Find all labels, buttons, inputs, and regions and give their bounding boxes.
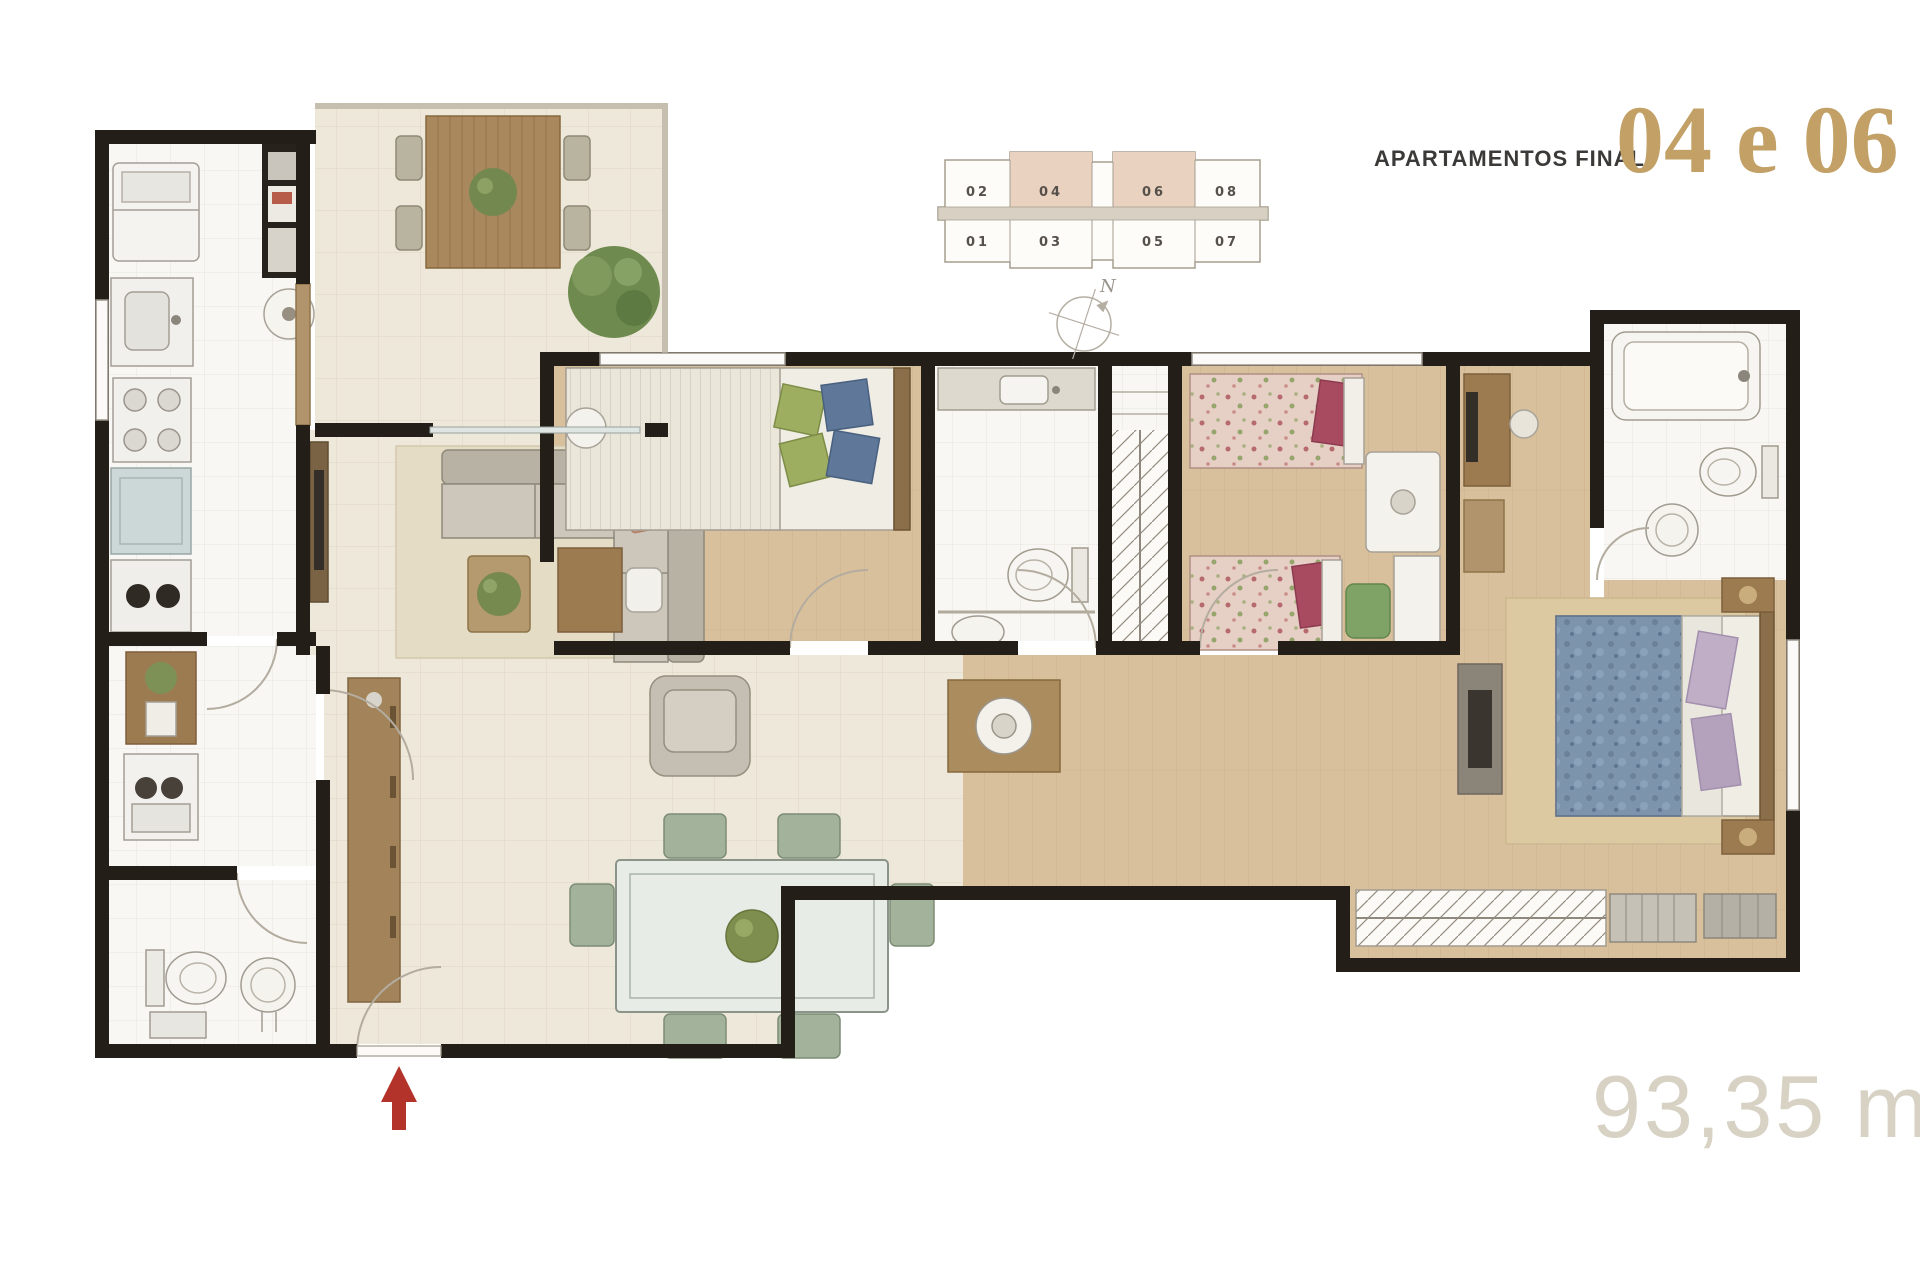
suite-closet (1356, 890, 1776, 946)
kitchen-sink (111, 278, 193, 366)
tv-console (1458, 664, 1502, 794)
compass-north-label: N (1099, 276, 1117, 297)
lamp-table (948, 680, 1060, 772)
suite-window (1787, 640, 1799, 810)
armchair (650, 676, 750, 776)
kitchen-window (96, 300, 108, 420)
key-plan-unit-05: 05 (1142, 235, 1166, 250)
key-plan-corridor (938, 207, 1268, 220)
laundry-cabinet (126, 652, 196, 744)
terrace-parapet-side (662, 103, 668, 360)
toilet (1700, 446, 1778, 498)
area-label: 93,35 m² (1592, 1056, 1920, 1158)
key-plan-unit-07: 07 (1215, 235, 1239, 250)
kitchen-counter (111, 468, 191, 632)
dresser-mirror (1466, 392, 1478, 462)
bed-twin-a (1190, 374, 1364, 468)
unit-numbers: 04 e 06 (1616, 92, 1899, 188)
plant-side-table (468, 556, 530, 632)
key-plan-unit-06: 06 (1142, 185, 1166, 200)
bath-vanity (938, 368, 1095, 410)
key-plan: 02 04 06 08 01 03 05 07 (938, 152, 1268, 268)
key-plan-unit-01: 01 (966, 235, 990, 250)
key-plan-unit-08: 08 (1215, 185, 1239, 200)
bathtub (1612, 332, 1760, 420)
terrace-sliding-door (430, 427, 640, 433)
bed-single-1 (566, 368, 910, 530)
round-sink (1646, 504, 1698, 556)
bedroom2-nightstand (1366, 452, 1440, 552)
key-plan-unit-02: 02 (966, 185, 990, 200)
entrance-door-leaf (357, 1046, 441, 1056)
pass-through-counter (296, 284, 310, 425)
laundry-tank (124, 754, 198, 840)
terrace-parapet (315, 103, 668, 109)
double-bed (1556, 612, 1774, 820)
page-title: APARTAMENTOS FINAL (1374, 146, 1645, 172)
shelf-unit (1464, 500, 1504, 572)
terrace-table (426, 116, 560, 268)
floor-plan-page: 02 04 06 08 01 03 05 07 N APARTAMENTOS F… (0, 0, 1920, 1280)
tv-panel (310, 442, 328, 602)
stove (113, 378, 191, 462)
bedroom1-window (600, 353, 785, 365)
sideboard (348, 678, 400, 1002)
key-plan-unit-04: 04 (1039, 185, 1063, 200)
key-plan-unit-03: 03 (1039, 235, 1063, 250)
dining-table (616, 860, 888, 1012)
terrace-tree (568, 246, 660, 338)
stool (1510, 410, 1538, 438)
bedroom2-window (1192, 353, 1422, 365)
entrance-arrow-icon (381, 1066, 417, 1130)
fridge (113, 163, 199, 261)
